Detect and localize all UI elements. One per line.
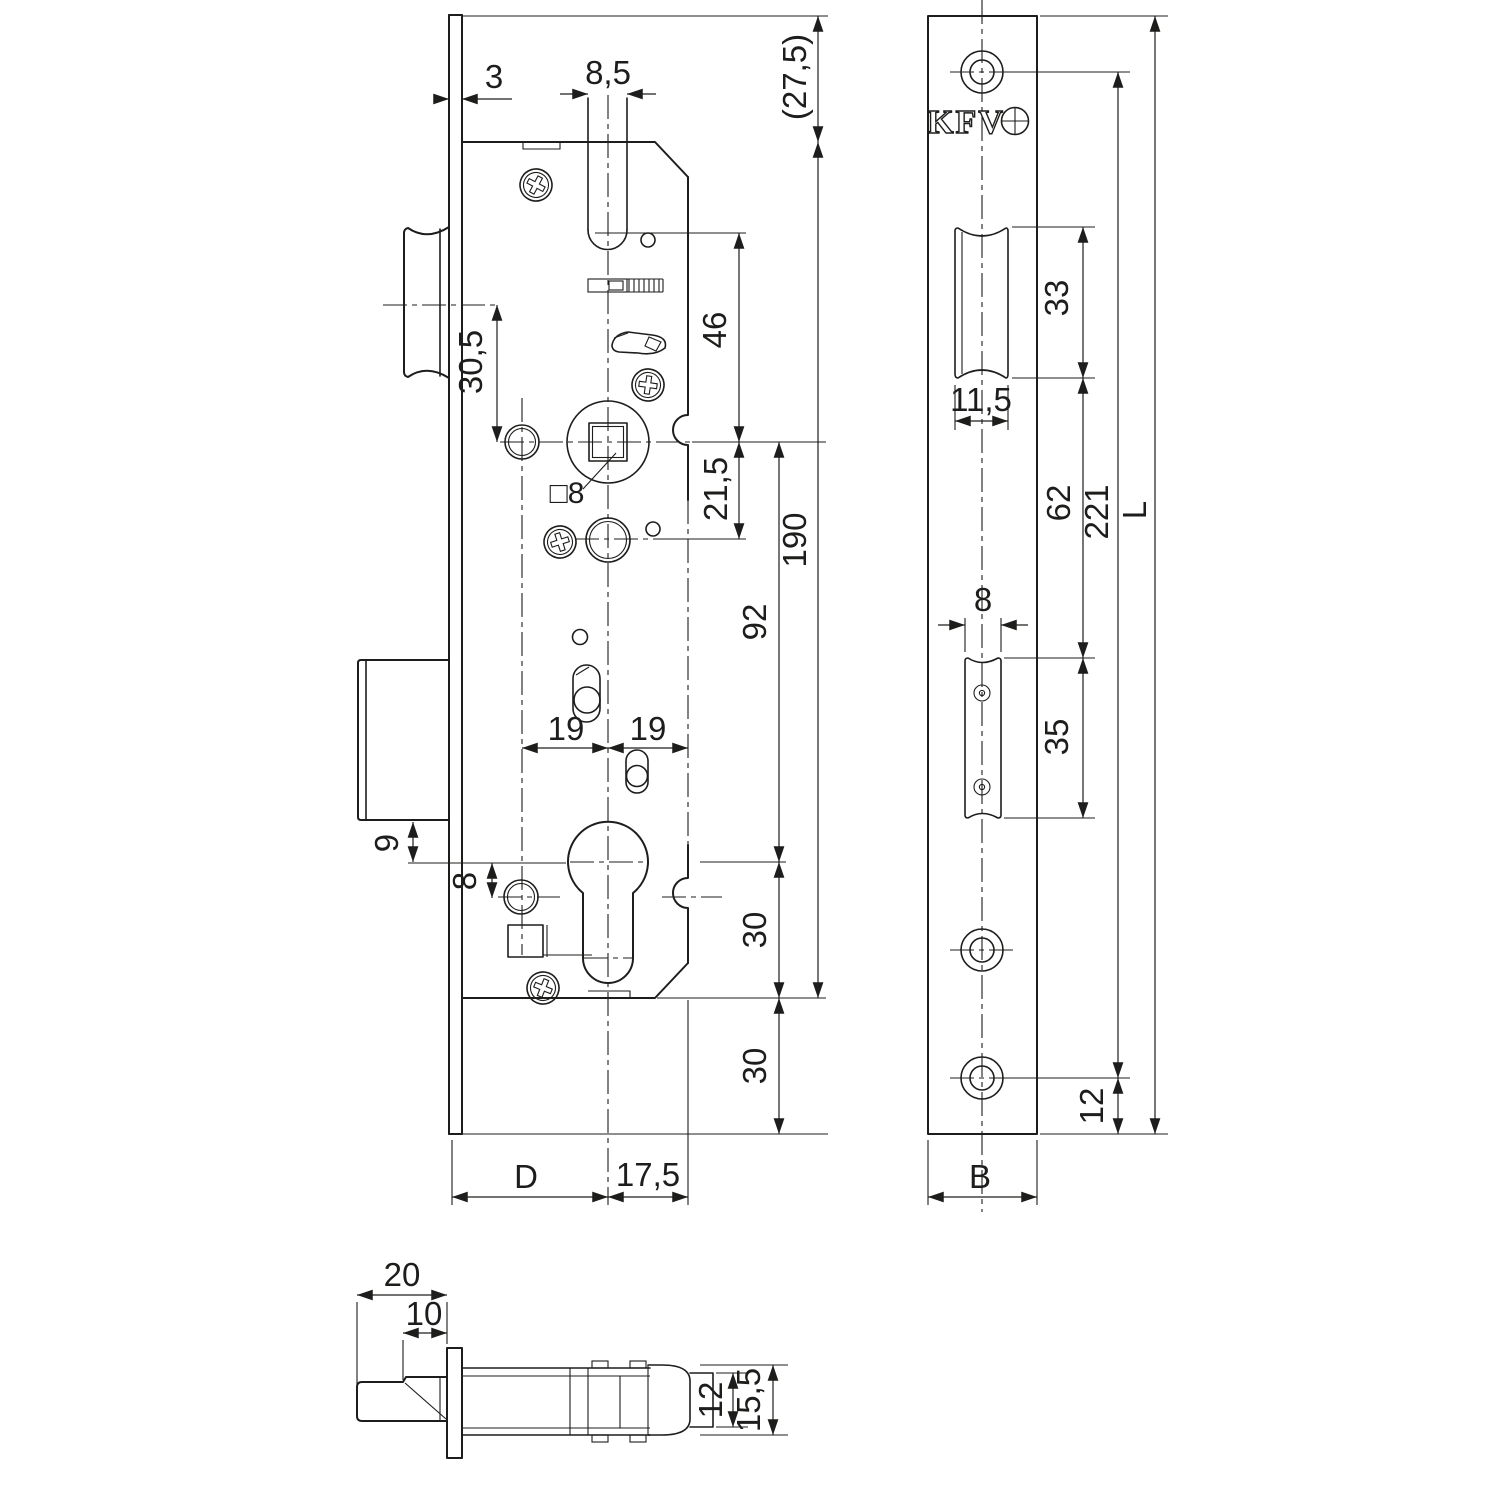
pawl-lever [612,332,665,354]
dim-follower-to-cylinder: 92 [736,604,773,641]
brand-logo-text: KFV [927,104,1005,141]
technical-drawing: 3 8,5 (27,5) 30,5 46 21,5 190 92 19 19 9… [0,0,1500,1500]
square-recess [508,925,592,957]
dim-latch-bevel: 10 [406,1295,443,1332]
deadbolt [358,660,449,820]
side-view: 3 8,5 (27,5) 30,5 46 21,5 190 92 19 19 9… [358,15,828,1205]
latch-bolt [404,227,449,378]
pin-hole-top [641,233,655,247]
dim-latch-cutout-width: 11,5 [950,381,1012,418]
dim-right-19: 19 [630,710,667,747]
dim-bottom-to-plate-end: 30 [736,1048,773,1085]
pin-hole-mid [646,522,660,536]
dim-latch-cutout-height: 33 [1038,280,1075,317]
dim-faceplate-thickness: 3 [485,58,503,95]
dim-plate-width-B: B [969,1158,991,1195]
dim-plate-length-L: L [1116,501,1153,519]
spring-detail [588,279,663,292]
latch-head-side [357,1377,447,1421]
dim-slot-width: 8,5 [585,54,631,91]
dim-center-offset: 17,5 [616,1156,680,1193]
deadbolt-cutout [965,658,1001,818]
faceplate-section [447,1348,462,1458]
dim-cyl-to-bottom: 30 [736,912,773,949]
dim-deadbolt-cutout-height: 35 [1038,719,1075,756]
dim-deadbolt-cutout-width: 8 [974,581,992,618]
dim-follower-to-hole: 21,5 [697,457,734,521]
dim-backset-D: D [514,1158,538,1195]
latch-detail-view: 20 10 12 15,5 [357,1256,788,1458]
dim-latch-head-depth: 20 [384,1256,421,1293]
dim-left-19: 19 [548,710,585,747]
dim-deadbolt-offset: 9 [368,834,405,852]
dim-latch-to-follower: 30,5 [452,330,489,394]
dim-top-offset: (27,5) [776,34,813,120]
lock-case-outline [462,142,688,998]
brand-screw-icon [1002,108,1029,135]
dim-latch-total-height: 15,5 [730,1368,767,1432]
dim-case-height: 190 [776,512,813,567]
dim-hole-offset-8: 8 [446,872,483,890]
dim-pin-to-follower: 46 [696,312,733,349]
dim-latch-height-12: 12 [692,1382,729,1419]
dim-cutout-gap: 62 [1040,485,1077,522]
oval-slot-lower [626,750,648,793]
drawing-page: 3 8,5 (27,5) 30,5 46 21,5 190 92 19 19 9… [0,0,1500,1500]
dim-square-spindle-label: □8 [550,477,585,510]
faceplate-view: KFV [927,0,1168,1212]
pin-hole-lower [573,630,588,645]
dim-screw-distance: 221 [1078,484,1115,539]
latch-body-mechanism [462,1361,713,1442]
dim-screw-to-end: 12 [1073,1088,1110,1125]
faceplate-edge [449,15,462,1134]
